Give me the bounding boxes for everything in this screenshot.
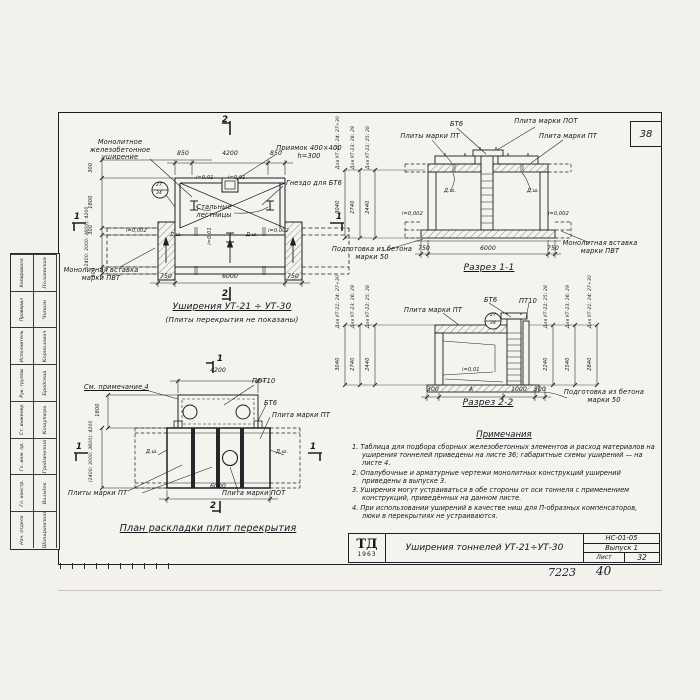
plan-top-subtitle: (Плиты перекрытия не показаны) <box>166 316 299 324</box>
blueprint-sheet: 38 <box>0 0 700 700</box>
label-bt6-plan: БТ6 <box>264 400 277 408</box>
pb-mark-2: 2 <box>210 502 216 512</box>
s1-vdim-value-2: 2740 <box>351 200 357 213</box>
s1-dim-6000: 6000 <box>480 246 496 253</box>
sheet-label: Лист <box>584 553 625 562</box>
dim-left-300a: 300 <box>89 163 95 173</box>
label-socket-bt6: Гнездо для БТ6 <box>286 180 342 188</box>
dim-750-left: 750 <box>160 274 172 281</box>
dim-6000: 6000 <box>222 274 238 281</box>
slope-left: i=0,002 <box>126 229 147 235</box>
dim-750-right: 750 <box>287 274 299 281</box>
s1-vdim-label-2: Для УТ-23; 26; 29 <box>351 126 356 169</box>
plan-top-title: Уширения УТ-21 ÷ УТ-30 <box>173 302 292 312</box>
pb-joint-left: Д.ш. <box>146 450 158 456</box>
s2-vdiml-label-2: Для УТ-23; 26; 29 <box>351 285 356 328</box>
pb-dim-6000: 6000 <box>210 484 226 491</box>
signature-stamp: Нач. отдела Шапиранский Гл. констр. Валь… <box>10 253 60 550</box>
doc-code: НС-01-05 <box>584 534 659 544</box>
s2-vdiml-value-2: 2740 <box>351 357 357 370</box>
note-item-2: 2. Опалубочные и арматурные чертежи моно… <box>352 469 656 485</box>
label-pt-plural: Плиты марки ПТ <box>68 490 127 498</box>
notes-block: Примечания 1. Таблица для подбора сборны… <box>352 430 656 521</box>
slope-pit-left: i=0,01 <box>196 176 214 182</box>
pb-mark-1-left: 1 <box>76 443 82 453</box>
dim-left-1800: 1800 <box>89 195 95 208</box>
stamp-name: Гродзенский <box>34 438 57 475</box>
s1-vdim-value-1: 3040 <box>336 200 342 213</box>
s2-slope: i=0,01 <box>462 368 480 374</box>
section-mark-1-left: 1 <box>74 213 80 223</box>
section-mark-2-bottom: 2 <box>222 290 228 300</box>
stamp-role: Нач. отдела <box>11 511 34 548</box>
stamp-name: Полаевская <box>34 254 57 291</box>
s1-joint-left: Д.ш. <box>444 189 456 195</box>
logo-box: ТД 1963 <box>349 534 386 562</box>
stamp-role: Гл. инж. пр. <box>11 438 34 475</box>
s2-vdimr-value-3: 2840 <box>588 357 594 370</box>
signature-stamp-grid: Нач. отдела Шапиранский Гл. констр. Валь… <box>11 254 57 548</box>
section-mark-2-top: 2 <box>222 116 228 126</box>
s1-joint-right: Д.ш. <box>527 189 539 195</box>
stamp-role: Гл. констр. <box>11 475 34 512</box>
label-see-note-4: См. примечание 4 <box>84 384 149 392</box>
s2-vdimr-label-3: Для УТ-21; 24; 27÷30 <box>588 275 593 328</box>
sheet-number: 32 <box>625 553 659 562</box>
section-1-1-title: Разрез 1-1 <box>464 263 515 273</box>
detail-circle-top: 27 <box>156 183 162 188</box>
slope-center: i=0,01 <box>208 227 214 245</box>
s2-vdiml-label-3: Для УТ-22; 25; 28 <box>366 285 371 328</box>
s1-vdim-label-1: Для УТ-21; 24; 27÷30 <box>336 116 341 169</box>
detail-circle-bottom: 34 <box>156 191 162 196</box>
sheet-row: Лист 32 <box>584 553 659 562</box>
stamp-name: Кошутери <box>34 401 57 438</box>
pb-dim-group: (2400; 3000; 3600); 4200 <box>89 420 94 482</box>
section-2-2-title: Разрез 2-2 <box>463 398 514 408</box>
title-block: ТД 1963 Уширения тоннелей УТ-21÷УТ-30 НС… <box>348 533 660 563</box>
dim-850-right: 850 <box>270 151 282 158</box>
s1-slope-right: i=0,002 <box>548 212 569 218</box>
joint-right: Д.ш. <box>246 233 258 239</box>
s1-dim-750-left: 750 <box>418 246 430 253</box>
label-monolith-insert: Монолитная вставка марки ПВТ <box>60 267 142 282</box>
dim-850-left: 850 <box>177 151 189 158</box>
s2-dim-1000: 1000 <box>511 387 527 394</box>
stamp-name: Бродский <box>34 364 57 401</box>
stamp-name: Чипиги <box>34 291 57 328</box>
logo-year: 1963 <box>357 551 376 558</box>
s2-label-prep: Подготовка из бетона марки 50 <box>554 389 654 404</box>
s2-vdiml-value-3: 2440 <box>366 357 372 370</box>
stamp-name: Вальдок <box>34 475 57 512</box>
s1-label-prep: Подготовка из бетона марки 50 <box>324 246 420 261</box>
pb-dim-1800: 1800 <box>96 403 102 416</box>
s2-label-pt: Плита марки ПТ <box>404 307 462 315</box>
s2-detail-circle-top: 27 <box>490 313 496 318</box>
dim-left-300b: 300 <box>89 225 95 235</box>
s1-label-bt6: БТ6 <box>450 121 463 129</box>
stamp-role: Ст. инженер <box>11 401 34 438</box>
pb-mark-1-top: 1 <box>217 355 223 365</box>
label-pot10: ПОТ10 <box>252 378 275 386</box>
s2-vdimr-label-2: Для УТ-23; 26; 29 <box>566 285 571 328</box>
note-item-4: 4. При использовании уширений в качестве… <box>352 504 656 520</box>
issue-label: Выпуск 1 <box>584 544 659 554</box>
s2-vdimr-label-1: Для УТ-22; 25; 28 <box>544 285 549 328</box>
title-block-right: НС-01-05 Выпуск 1 Лист 32 <box>583 534 659 562</box>
footer-page-number: 40 <box>596 564 611 578</box>
s1-label-pot: Плита марки ПОТ <box>514 118 577 126</box>
drawing-title: Уширения тоннелей УТ-21÷УТ-30 <box>386 534 583 562</box>
label-monolith-widening: Монолитное железобетонное уширение <box>74 139 166 162</box>
pb-mark-1-right: 1 <box>310 443 316 453</box>
stamp-name: Шапиранский <box>34 511 57 548</box>
stamp-role: Исполнитель <box>11 328 34 365</box>
notes-heading: Примечания <box>352 430 656 440</box>
note-item-1: 1. Таблица для подбора сборных железобет… <box>352 443 656 468</box>
stamp-role: Копировала <box>11 254 34 291</box>
s2-vdiml-label-1: Для УТ-21; 24; 27÷30 <box>336 275 341 328</box>
s2-dim-300-left: 300 <box>427 387 439 394</box>
s2-dim-300-right: 300 <box>534 387 546 394</box>
plan-bottom-title: План раскладки плит перекрытия <box>120 523 297 534</box>
s1-slope-left: i=0,002 <box>402 212 423 218</box>
pb-joint-right: Д.ш. <box>276 450 288 456</box>
logo-td: ТД <box>356 538 377 551</box>
s1-vdim-label-3: Для УТ-22; 25; 28 <box>366 126 371 169</box>
stamp-role: Рук. группы <box>11 364 34 401</box>
s2-label-bt6: БТ6 <box>484 297 497 305</box>
s1-dim-750-right: 750 <box>547 246 559 253</box>
footer-doc-number: 7223 <box>548 566 576 579</box>
s1-label-pt-right: Плита марки ПТ <box>539 133 597 141</box>
label-steel-ladders: Стальные лестницы <box>182 204 246 219</box>
stamp-name: Корнилович <box>34 328 57 365</box>
joint-left: Д.ш. <box>170 233 182 239</box>
s1-vdim-value-3: 2440 <box>366 200 372 213</box>
slope-right: i=0,002 <box>268 229 289 235</box>
s2-dim-a: А <box>469 387 473 394</box>
sheet-edge <box>58 590 662 591</box>
s1-label-pt-left: Плиты марки ПТ <box>400 133 459 141</box>
s2-vdimr-value-2: 2540 <box>566 357 572 370</box>
dim-left-group: (2400; 3000; 3600); 4200 <box>85 206 90 268</box>
stamp-role: Проверил <box>11 291 34 328</box>
s1-label-insert: Монолитная вставка марки ПВТ <box>552 240 648 255</box>
dim-left-300c: 300 <box>92 268 98 278</box>
s2-detail-circle-bottom: 34 <box>490 321 496 326</box>
note-item-3: 3. Уширения могут устраиваться в обе сто… <box>352 486 656 502</box>
pb-dim-4200: 4200 <box>210 368 226 375</box>
dim-4200: 4200 <box>222 151 238 158</box>
frame-tick-marks <box>60 563 172 569</box>
label-pt-plan: Плита марки ПТ <box>272 412 330 420</box>
label-pot-plan: Плита марки ПОТ <box>222 490 285 498</box>
s2-vdimr-value-1: 2240 <box>544 357 550 370</box>
s2-label-pt10: ПТ10 <box>519 298 537 306</box>
slope-pit-right: i=0,01 <box>228 176 246 182</box>
